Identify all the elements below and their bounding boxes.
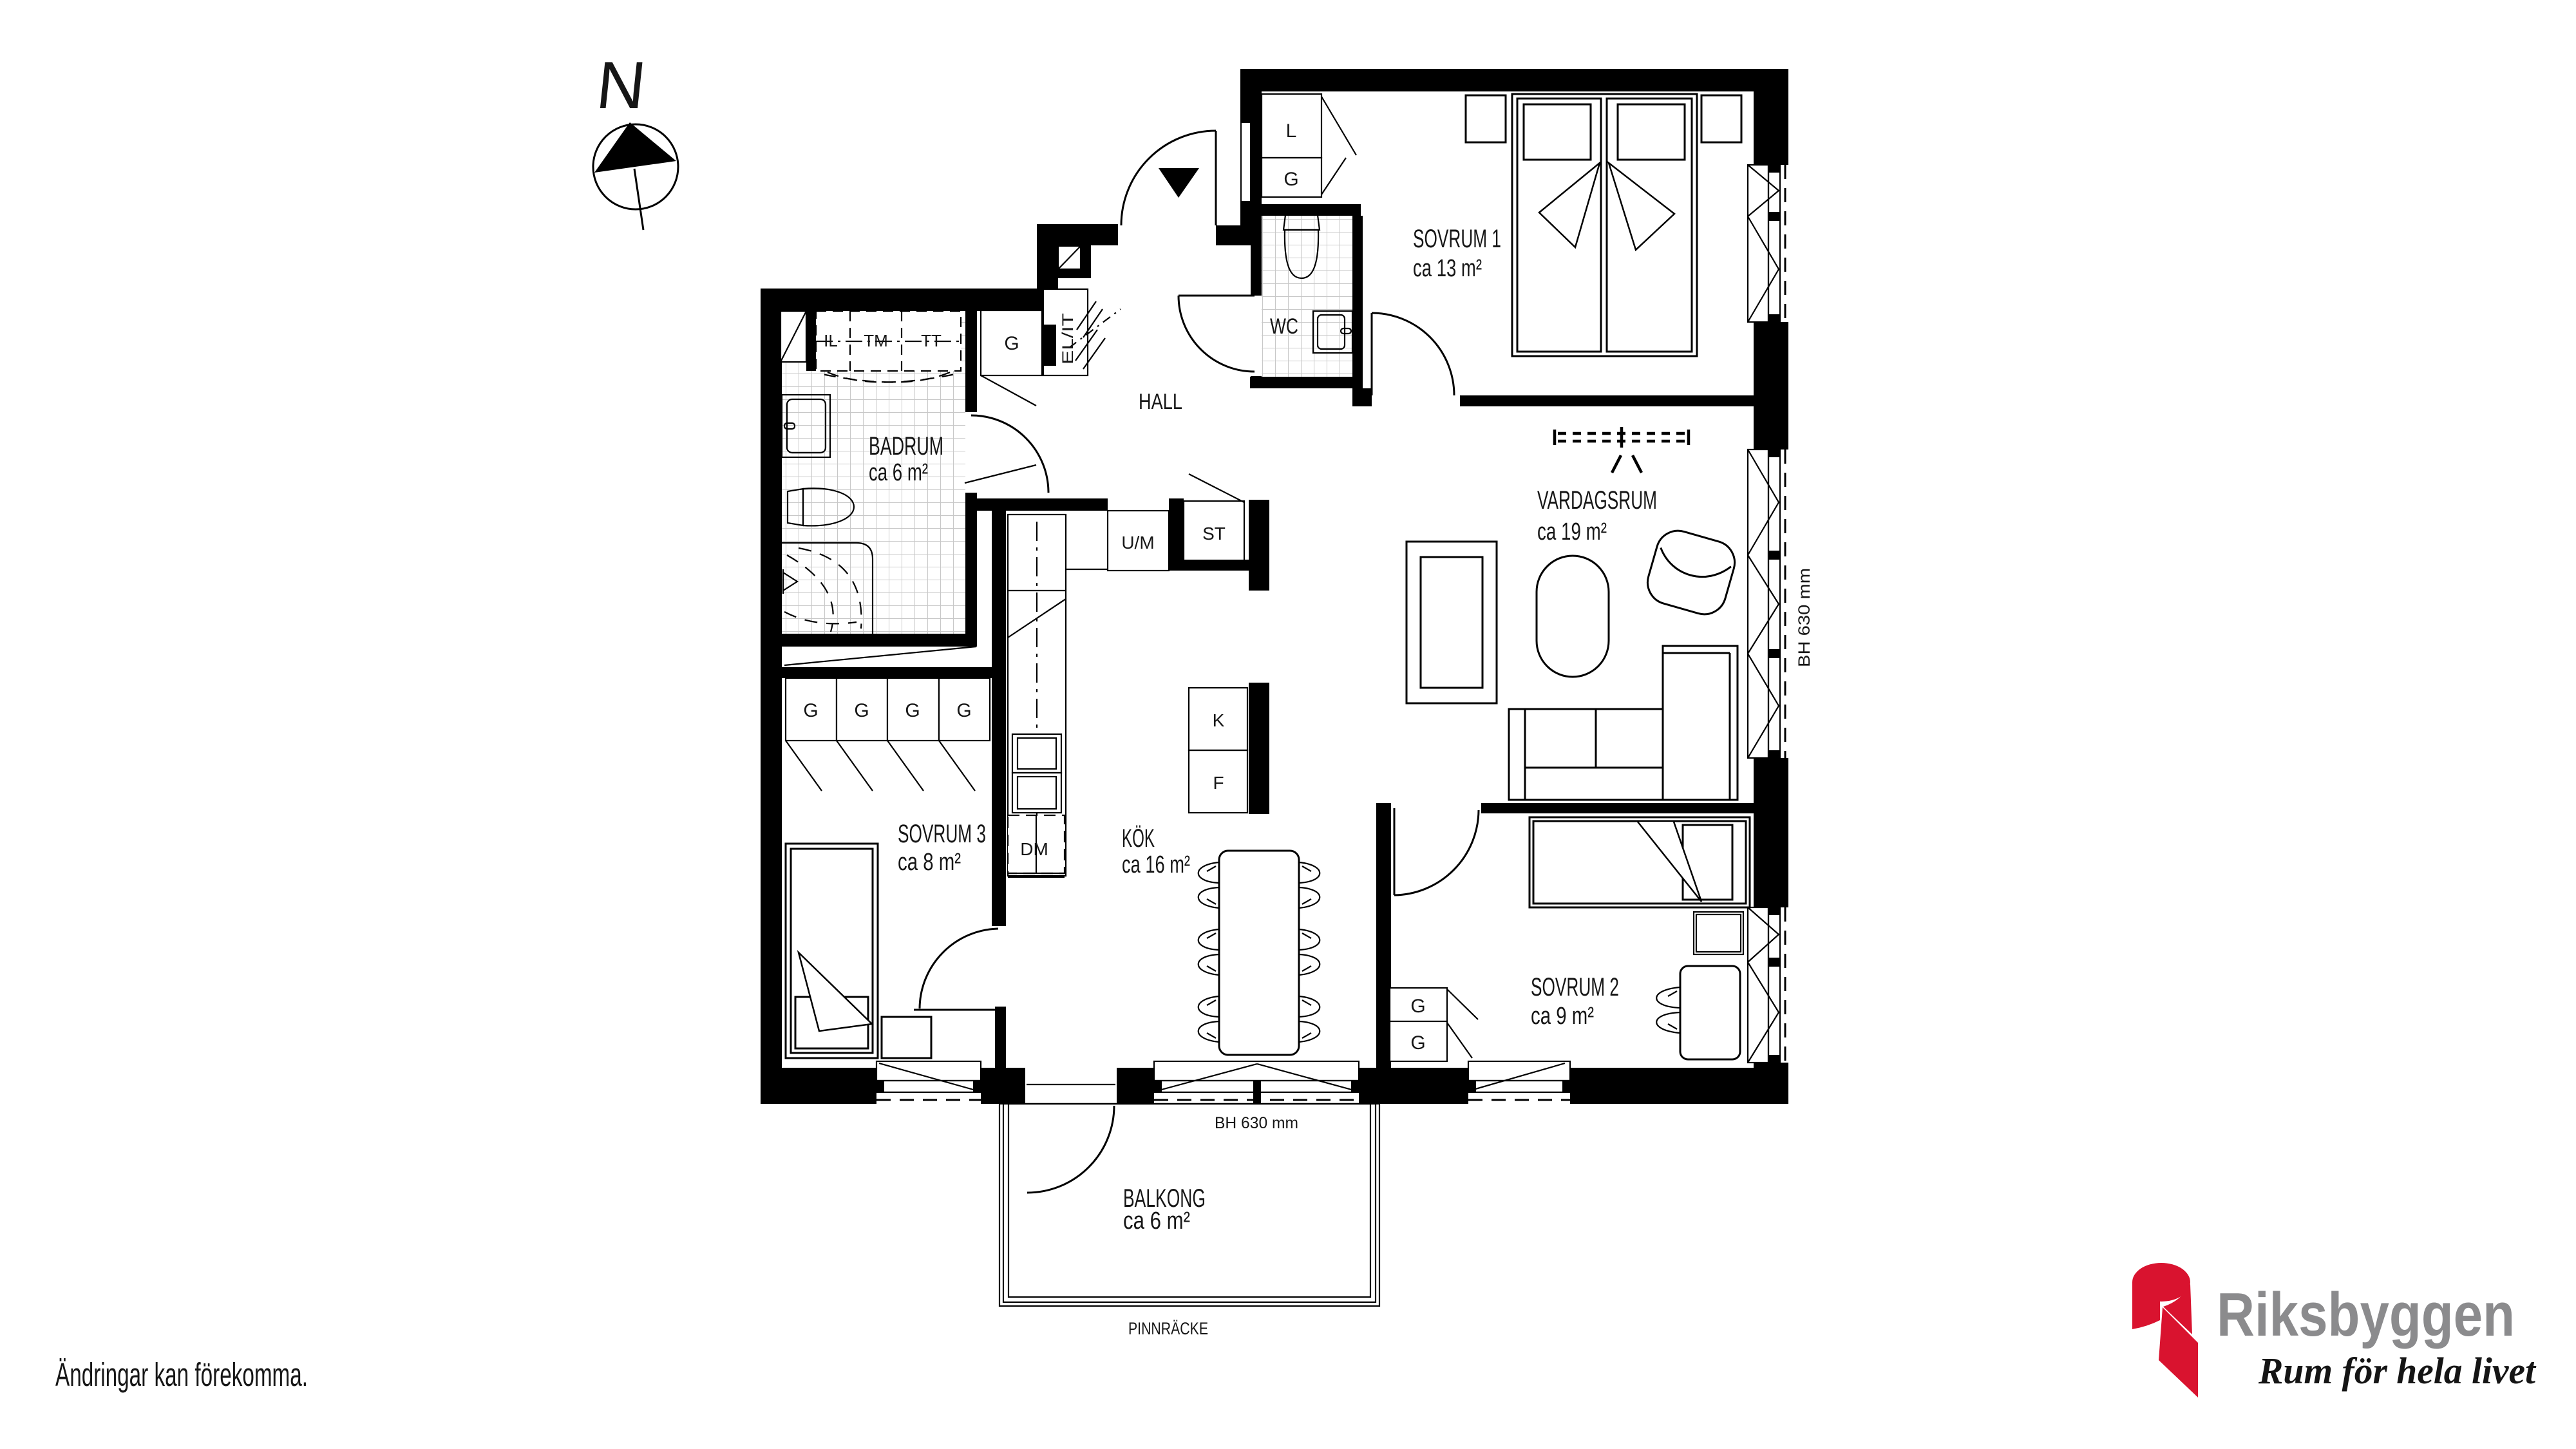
svg-text:SOVRUM 3: SOVRUM 3 [898, 820, 986, 848]
svg-text:N: N [593, 48, 649, 123]
svg-text:ca 9 m²: ca 9 m² [1531, 1003, 1594, 1030]
svg-text:VARDAGSRUM: VARDAGSRUM [1537, 486, 1657, 515]
svg-text:ST: ST [1202, 524, 1226, 544]
svg-text:SOVRUM 2: SOVRUM 2 [1531, 973, 1619, 1001]
svg-text:TM: TM [864, 331, 888, 350]
svg-text:G: G [803, 700, 818, 721]
svg-text:TT: TT [921, 331, 942, 350]
svg-text:G: G [905, 700, 920, 721]
svg-text:ca 8 m²: ca 8 m² [898, 849, 961, 876]
svg-text:ca 13 m²: ca 13 m² [1413, 255, 1482, 282]
svg-text:BH 630 mm: BH 630 mm [1215, 1114, 1298, 1132]
svg-text:KÖK: KÖK [1122, 824, 1155, 853]
svg-text:G: G [956, 700, 971, 721]
svg-text:HALL: HALL [1139, 390, 1182, 414]
svg-text:ca 6 m²: ca 6 m² [869, 459, 928, 486]
svg-text:Ändringar kan förekomma.: Ändringar kan förekomma. [55, 1356, 308, 1393]
svg-text:G: G [854, 700, 869, 721]
svg-text:Riksbyggen: Riksbyggen [2217, 1280, 2515, 1349]
svg-text:BADRUM: BADRUM [869, 432, 943, 460]
svg-text:G: G [1410, 1032, 1425, 1054]
svg-text:G: G [1004, 333, 1019, 354]
svg-text:F: F [1213, 773, 1224, 793]
svg-text:WC: WC [1270, 314, 1298, 339]
svg-text:U/M: U/M [1121, 533, 1154, 553]
svg-text:ca 16 m²: ca 16 m² [1122, 851, 1190, 878]
svg-text:SOVRUM 1: SOVRUM 1 [1413, 225, 1501, 253]
svg-text:PINNRÄCKE: PINNRÄCKE [1128, 1319, 1208, 1338]
svg-text:DM: DM [1020, 839, 1048, 859]
svg-text:L: L [1286, 120, 1297, 142]
svg-text:G: G [1410, 996, 1425, 1017]
svg-text:ca 19 m²: ca 19 m² [1537, 518, 1607, 545]
svg-text:BH 630 mm: BH 630 mm [1795, 568, 1814, 667]
svg-text:IL: IL [824, 331, 838, 350]
svg-text:EL/IT: EL/IT [1059, 313, 1077, 365]
svg-text:Rum för hela livet: Rum för hela livet [2258, 1350, 2537, 1392]
svg-text:ca 6 m²: ca 6 m² [1123, 1207, 1190, 1235]
svg-text:K: K [1213, 710, 1225, 730]
svg-text:G: G [1283, 169, 1298, 190]
